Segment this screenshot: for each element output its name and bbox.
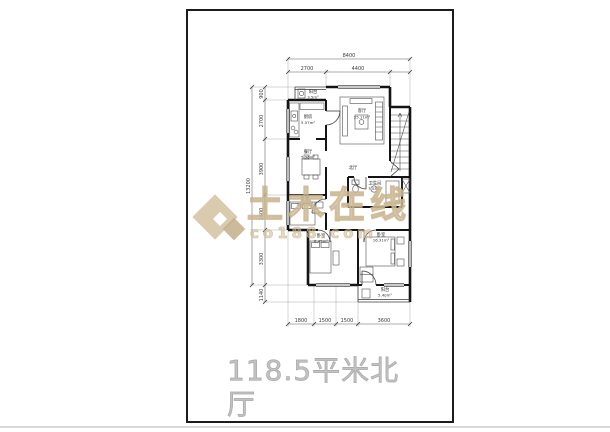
dimension-top-segments: 2700 4400 <box>286 66 412 74</box>
room-name: 厨房 <box>304 113 313 120</box>
plan-title: 118.5平米北厅 <box>227 354 427 421</box>
dim-label: 4400 <box>352 66 365 72</box>
staircase <box>391 112 409 172</box>
interior-walls <box>288 100 410 285</box>
dim-label: 3900 <box>259 163 265 176</box>
living-room-furniture <box>340 97 384 144</box>
room-area: 3.5m² <box>307 95 319 100</box>
room-name: 客厅 <box>358 107 367 114</box>
dim-label: 1500 <box>341 318 354 324</box>
room-area: 16.31m² <box>373 238 390 243</box>
dimension-bottom: 1800 1500 1500 3600 <box>286 318 412 326</box>
dim-label: 1500 <box>319 318 332 324</box>
room-area: 7.53m² <box>368 186 382 191</box>
dim-label: 3600 <box>378 318 391 324</box>
room-area: 10.61m² <box>297 202 314 207</box>
hall-label: 北厅 <box>349 164 358 171</box>
screen-bottom-edge <box>0 426 610 428</box>
bedroom-bottom-right-furniture <box>360 237 404 282</box>
bedroom-bottom-left-furniture <box>310 241 339 273</box>
dim-label: 900 <box>259 89 265 99</box>
dimension-left-total: 13200 <box>246 85 254 287</box>
room-area: 25.11m² <box>354 115 371 120</box>
dim-label-top-total: 8400 <box>343 53 356 59</box>
dim-label: 1140 <box>259 289 265 302</box>
room-area: 5.57m² <box>301 120 315 125</box>
room-area: 5.40m² <box>378 293 392 298</box>
balcony-bottom-furniture <box>362 289 370 298</box>
balcony-top-furniture <box>298 89 305 98</box>
screenshot-canvas: 8400 2700 4400 13200 900 27 <box>0 0 610 432</box>
room-area: 5.96m² <box>301 155 315 160</box>
dimension-top-total: 8400 <box>286 53 412 61</box>
room-area: 8.45m² <box>314 239 328 244</box>
dim-label: 3300 <box>259 253 265 266</box>
dim-label: 1800 <box>295 318 308 324</box>
dim-label: 2700 <box>301 66 314 72</box>
dim-label: 2400 <box>259 208 265 221</box>
dimension-left-segments: 900 2700 3900 2400 3300 1140 <box>259 85 267 304</box>
dim-label-left-total: 13200 <box>246 178 252 194</box>
dim-label: 2700 <box>259 115 265 128</box>
